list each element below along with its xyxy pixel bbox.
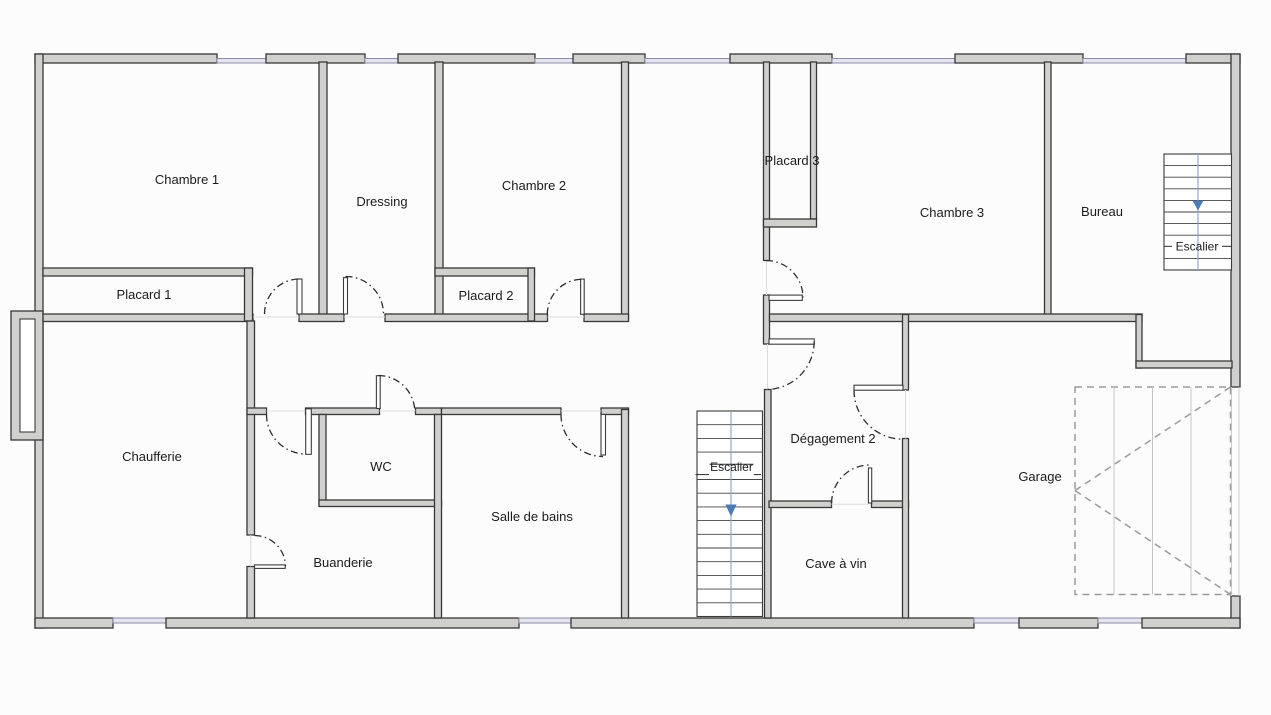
svg-text:Garage: Garage	[1018, 469, 1061, 484]
svg-text:Placard 1: Placard 1	[117, 287, 172, 302]
svg-text:WC: WC	[370, 459, 392, 474]
svg-text:Bureau: Bureau	[1081, 204, 1123, 219]
svg-text:Dressing: Dressing	[356, 194, 407, 209]
svg-text:Salle de bains: Salle de bains	[491, 509, 573, 524]
svg-text:Escalier: Escalier	[1176, 240, 1219, 254]
svg-text:Chaufferie: Chaufferie	[122, 449, 182, 464]
svg-text:Placard 2: Placard 2	[459, 288, 514, 303]
svg-text:Placard 3: Placard 3	[765, 153, 820, 168]
svg-text:Cave à vin: Cave à vin	[805, 556, 866, 571]
svg-text:Chambre 1: Chambre 1	[155, 172, 219, 187]
svg-text:Escalier: Escalier	[710, 460, 753, 474]
svg-text:Chambre 3: Chambre 3	[920, 205, 984, 220]
svg-text:Buanderie: Buanderie	[313, 555, 372, 570]
svg-text:Dégagement 2: Dégagement 2	[790, 431, 875, 446]
svg-text:Chambre 2: Chambre 2	[502, 178, 566, 193]
